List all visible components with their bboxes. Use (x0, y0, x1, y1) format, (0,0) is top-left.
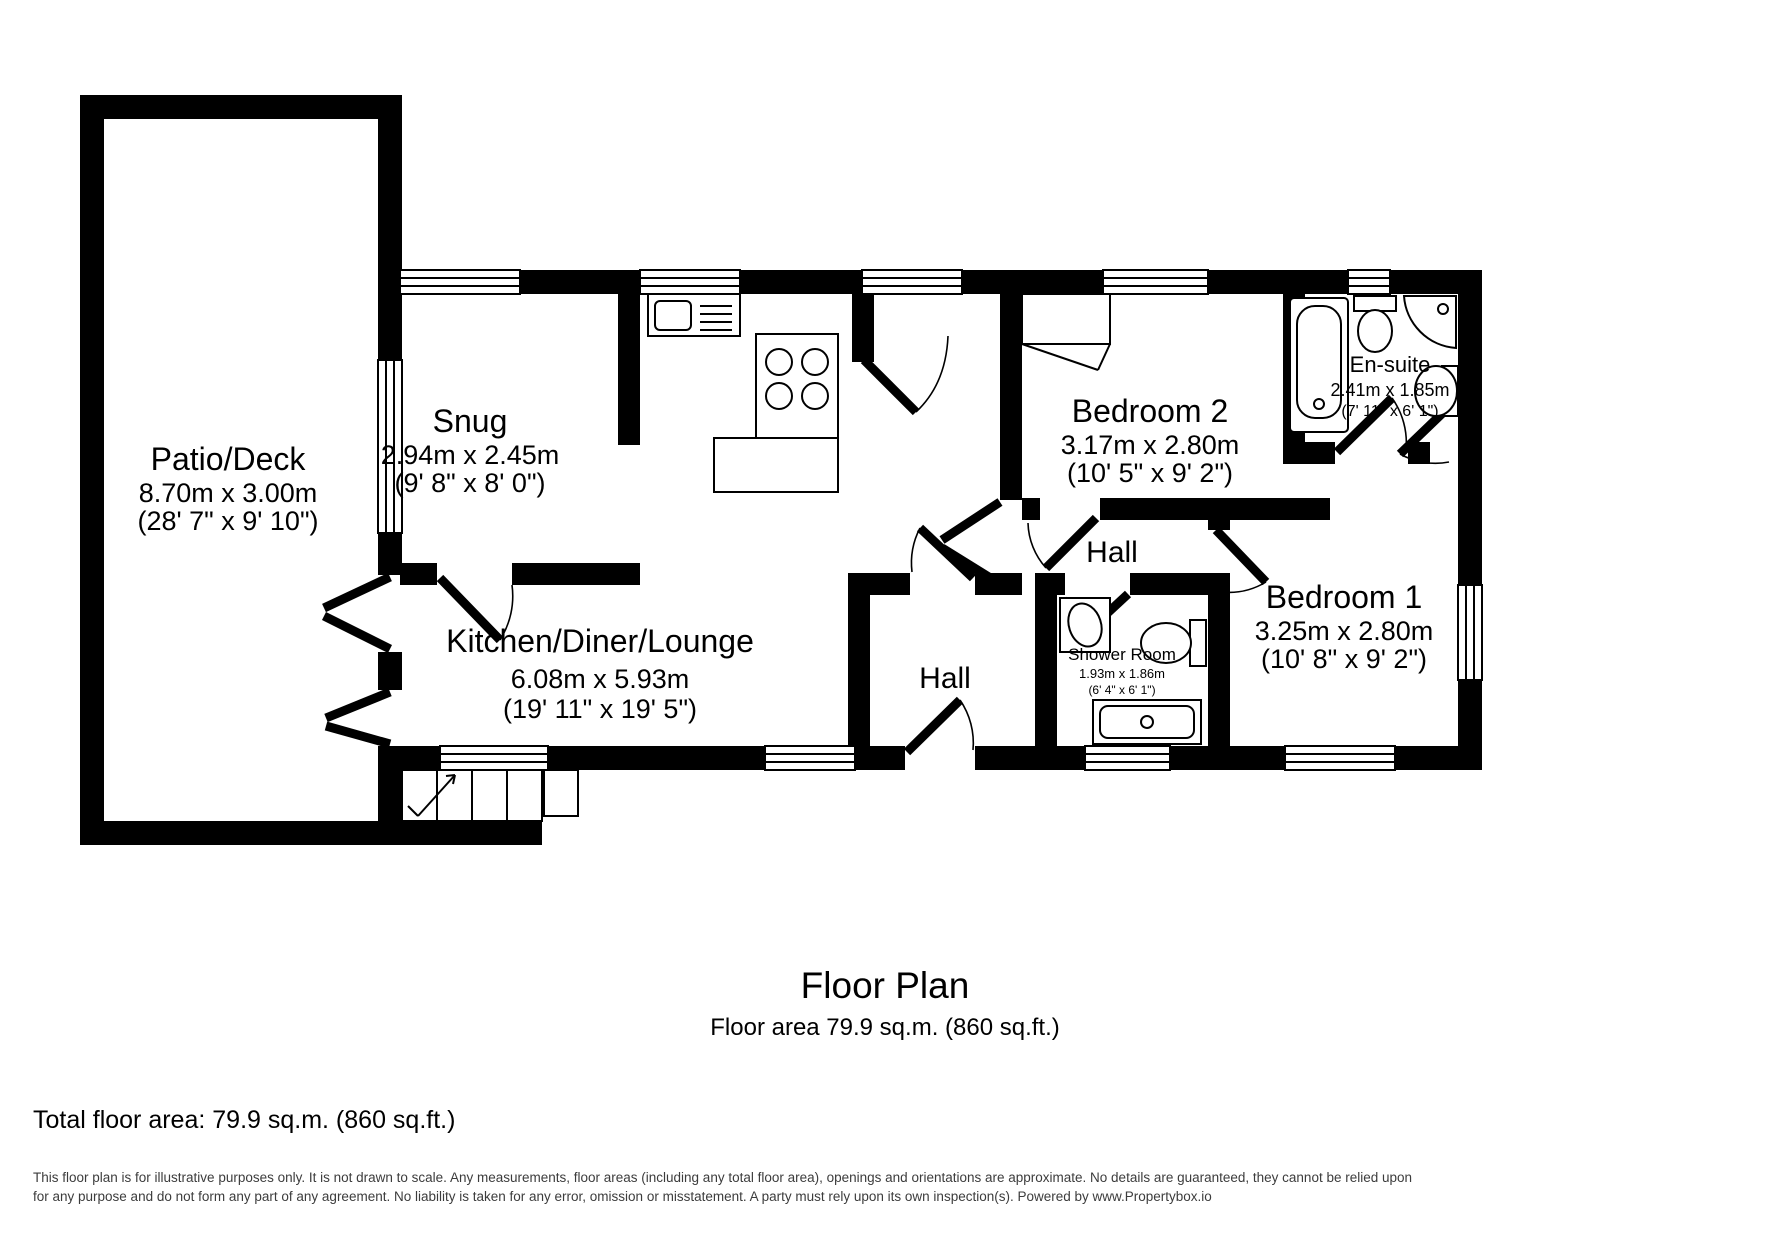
bedroom2-window (1103, 270, 1208, 294)
disclaimer-line-2: for any purpose and do not form any part… (33, 1189, 1212, 1204)
patio-door-upper (324, 577, 390, 649)
svg-text:(9' 8" x 8' 0"): (9' 8" x 8' 0") (394, 468, 545, 498)
svg-text:(10' 8" x 9' 2"): (10' 8" x 9' 2") (1261, 644, 1427, 674)
svg-text:2.94m x 2.45m: 2.94m x 2.45m (381, 440, 560, 470)
svg-text:Shower Room: Shower Room (1068, 645, 1176, 664)
bedroom1-side-window (1458, 585, 1482, 680)
svg-text:3.25m x 2.80m: 3.25m x 2.80m (1255, 616, 1434, 646)
svg-text:Snug: Snug (433, 403, 508, 439)
bedroom2-fixtures (1022, 294, 1110, 370)
svg-text:(10' 5" x 9' 2"): (10' 5" x 9' 2") (1067, 458, 1233, 488)
kitchen-door (864, 336, 948, 412)
page-subtitle: Floor area 79.9 sq.m. (860 sq.ft.) (710, 1014, 1060, 1041)
shower-sink (1060, 598, 1110, 652)
label-kitchen: Kitchen/Diner/Lounge 6.08m x 5.93m (19' … (446, 623, 754, 724)
svg-text:2.41m x 1.85m: 2.41m x 1.85m (1330, 380, 1449, 400)
bathtub (1290, 298, 1348, 432)
ensuite-toilet (1354, 296, 1396, 352)
svg-text:Kitchen/Diner/Lounge: Kitchen/Diner/Lounge (446, 623, 754, 659)
page-title: Floor Plan (801, 965, 970, 1006)
stairs-landing (544, 770, 578, 816)
svg-text:(6' 4" x 6' 1"): (6' 4" x 6' 1") (1088, 683, 1155, 697)
kitchen-window (640, 270, 740, 294)
snug-window (400, 270, 520, 294)
svg-text:(19' 11" x 19' 5"): (19' 11" x 19' 5") (503, 694, 697, 724)
kitchen-window-2 (862, 270, 962, 294)
svg-text:Hall: Hall (1086, 536, 1138, 569)
shower-tray (1093, 700, 1201, 744)
svg-text:Patio/Deck: Patio/Deck (151, 441, 307, 477)
hall-window (765, 746, 855, 770)
disclaimer-line-1: This floor plan is for illustrative purp… (33, 1170, 1412, 1185)
bedroom1-bottom-window (1285, 746, 1395, 770)
wardrobe (1022, 294, 1110, 370)
svg-text:(7' 11" x 6' 1"): (7' 11" x 6' 1") (1341, 403, 1438, 420)
label-shower-room: Shower Room 1.93m x 1.86m (6' 4" x 6' 1"… (1068, 645, 1176, 697)
label-snug: Snug 2.94m x 2.45m (9' 8" x 8' 0") (381, 403, 560, 498)
svg-text:1.93m x 1.86m: 1.93m x 1.86m (1079, 666, 1165, 681)
entrance-door (905, 700, 975, 770)
svg-text:Hall: Hall (919, 662, 971, 695)
ensuite-shower (1404, 296, 1456, 348)
stairs-window (440, 746, 548, 770)
label-patio: Patio/Deck 8.70m x 3.00m (28' 7" x 9' 10… (137, 441, 318, 536)
kitchen-fixtures (648, 294, 838, 492)
floor-plan-drawing: Patio/Deck 8.70m x 3.00m (28' 7" x 9' 10… (0, 0, 1771, 1239)
svg-text:Bedroom 1: Bedroom 1 (1266, 579, 1423, 615)
kitchen-sink (648, 294, 740, 336)
titles: Floor Plan Floor area 79.9 sq.m. (860 sq… (33, 965, 1412, 1204)
label-hall-upper: Hall (1086, 536, 1138, 569)
shower-window (1085, 746, 1170, 770)
label-bedroom2: Bedroom 2 3.17m x 2.80m (10' 5" x 9' 2") (1061, 393, 1240, 488)
label-bedroom1: Bedroom 1 3.25m x 2.80m (10' 8" x 9' 2") (1255, 579, 1434, 674)
doors (324, 336, 1452, 770)
total-floor-area: Total floor area: 79.9 sq.m. (860 sq.ft.… (33, 1106, 455, 1134)
svg-text:6.08m x 5.93m: 6.08m x 5.93m (511, 664, 690, 694)
label-hall-lower: Hall (919, 662, 971, 695)
svg-text:Bedroom 2: Bedroom 2 (1072, 393, 1229, 429)
svg-text:8.70m x 3.00m: 8.70m x 3.00m (139, 478, 318, 508)
svg-text:3.17m x 2.80m: 3.17m x 2.80m (1061, 430, 1240, 460)
floor-plan-page: Patio/Deck 8.70m x 3.00m (28' 7" x 9' 10… (0, 0, 1771, 1239)
patio-door-lower (326, 692, 390, 744)
ensuite-window (1348, 270, 1390, 294)
svg-text:En-suite: En-suite (1350, 352, 1431, 377)
stairs (402, 770, 578, 821)
svg-text:(28' 7" x 9' 10"): (28' 7" x 9' 10") (137, 506, 318, 536)
